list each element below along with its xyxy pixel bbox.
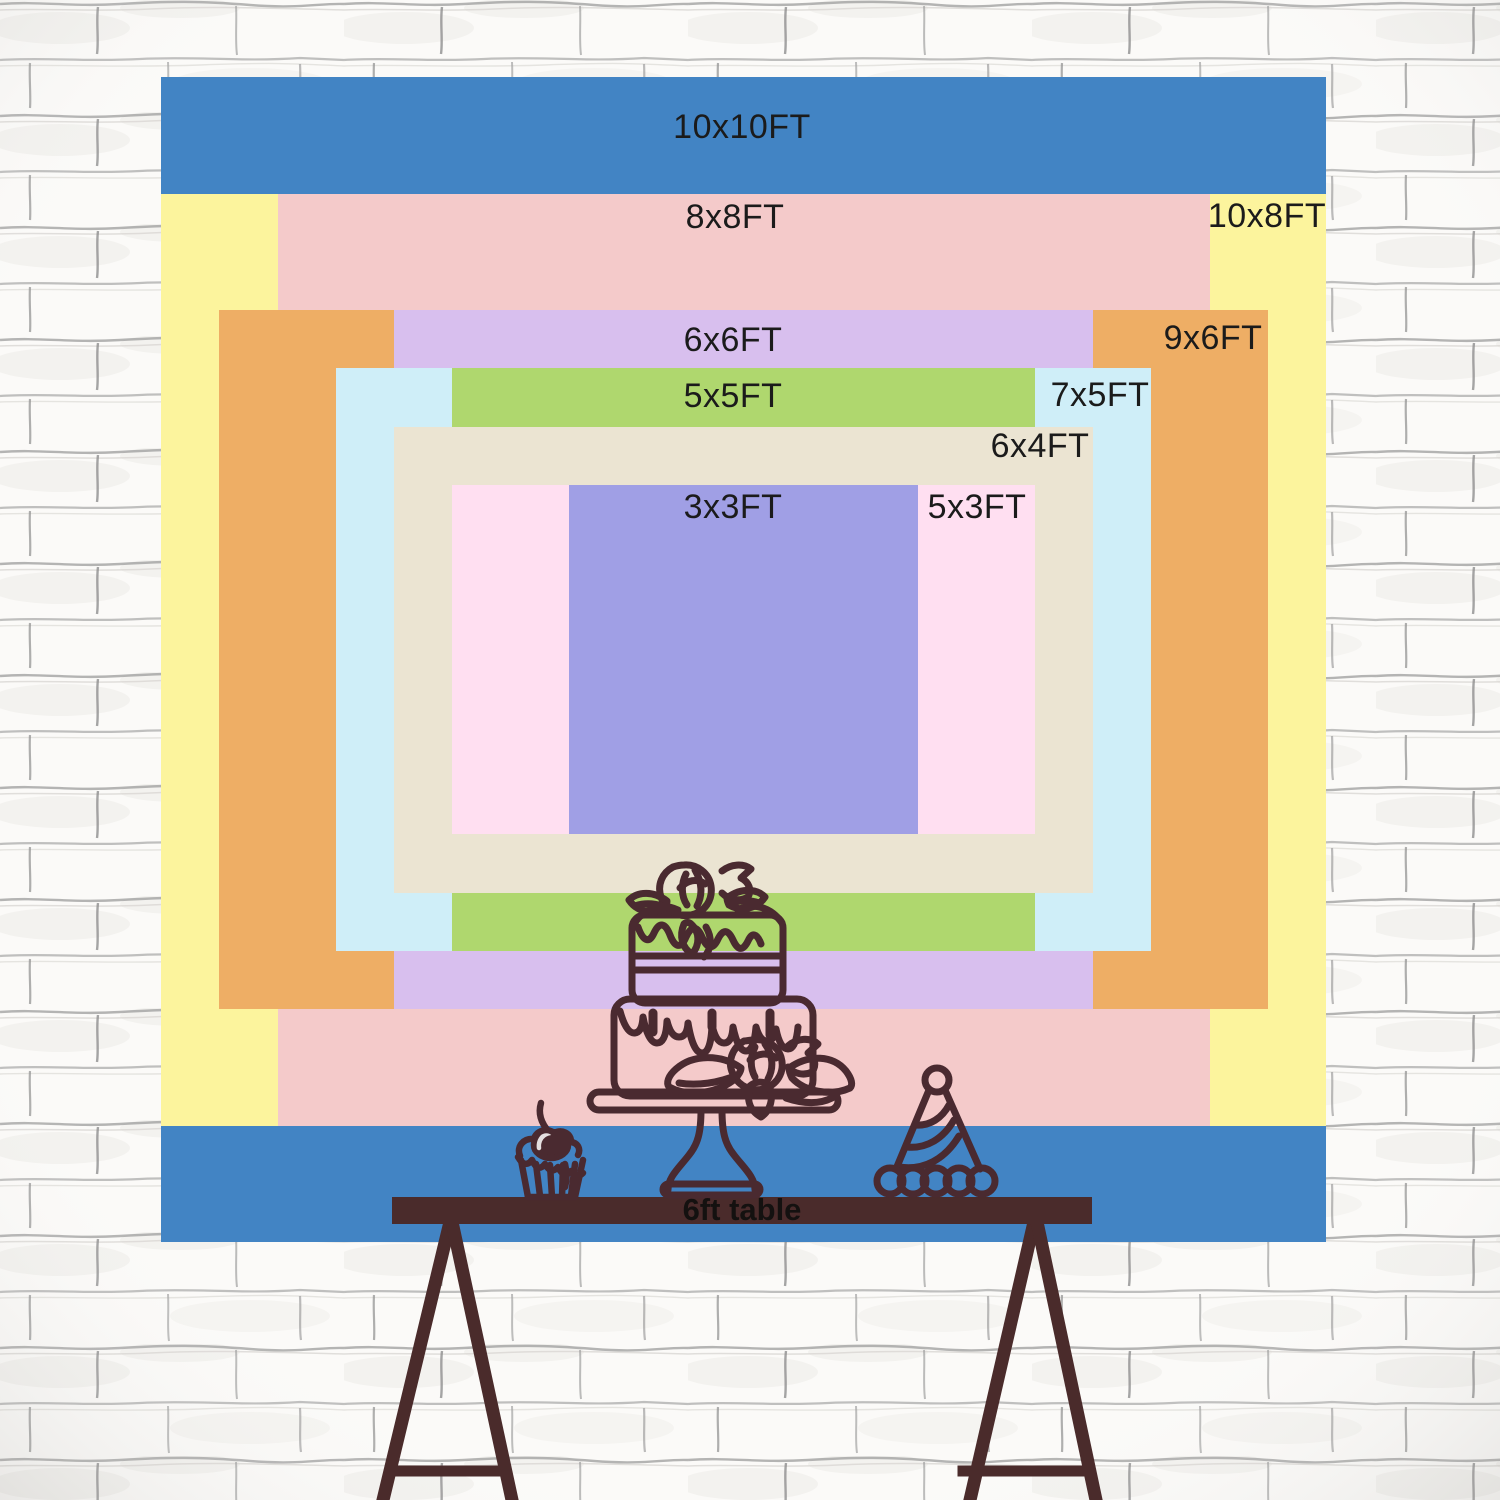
- size-label-10x10ft: 10x10FT: [673, 110, 811, 144]
- size-label-5x5ft: 5x5FT: [684, 379, 783, 413]
- size-label-6x4ft: 6x4FT: [991, 429, 1090, 463]
- size-label-3x3ft: 3x3FT: [684, 490, 783, 524]
- size-label-7x5ft: 7x5FT: [1051, 378, 1150, 412]
- size-label-6x6ft: 6x6FT: [684, 323, 783, 357]
- size-label-5x3ft: 5x3FT: [928, 490, 1027, 524]
- table-label: 6ft table: [683, 1192, 802, 1228]
- size-chart-labels: 10x10FT10x8FT8x8FT9x6FT6x6FT7x5FT5x5FT6x…: [0, 0, 1500, 1500]
- backdrop-size-guide-scene: 10x10FT10x8FT8x8FT9x6FT6x6FT7x5FT5x5FT6x…: [0, 0, 1500, 1500]
- size-label-10x8ft: 10x8FT: [1208, 199, 1326, 233]
- size-label-9x6ft: 9x6FT: [1164, 321, 1263, 355]
- size-label-8x8ft: 8x8FT: [686, 200, 785, 234]
